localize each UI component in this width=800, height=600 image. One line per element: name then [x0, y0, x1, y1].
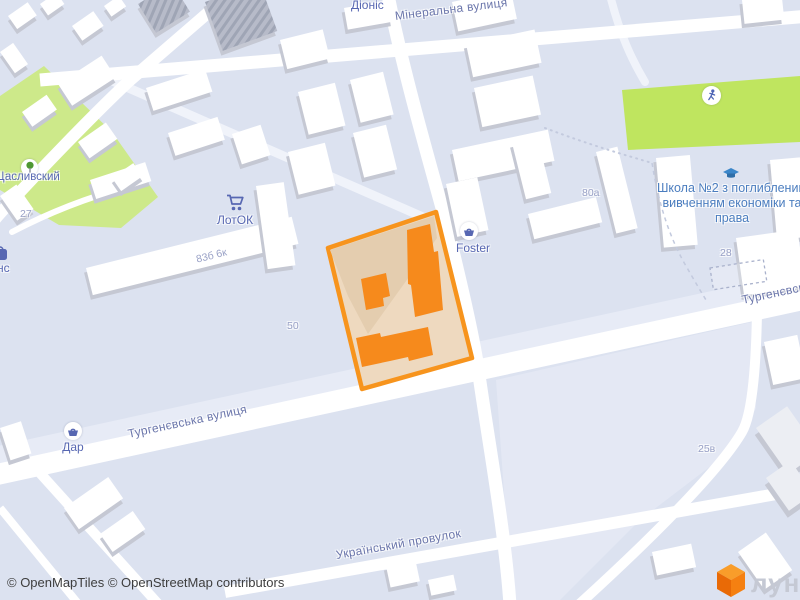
poi-label-dar: Дар: [60, 440, 86, 454]
map-attribution[interactable]: © OpenMapTiles © OpenStreetMap contribut…: [7, 575, 284, 590]
store-bag-icon[interactable]: [0, 246, 9, 261]
lun-logo-text: лун: [751, 568, 800, 599]
running-person-icon: [706, 89, 718, 102]
housenum-80a: 80а: [582, 187, 600, 199]
poi-label-foster: Foster: [456, 241, 490, 255]
poi-label-dionis: Діоніс: [351, 0, 384, 12]
lun-cube-icon: [716, 564, 746, 598]
housenum-27: 27: [20, 208, 32, 220]
foster-badge[interactable]: [460, 222, 478, 240]
housenum-50: 50: [287, 320, 299, 332]
poi-label-partial: нс: [0, 261, 10, 275]
map[interactable]: Мінеральна вулиця Тургенєвська вулиця Ту…: [0, 0, 800, 600]
graduation-cap-icon[interactable]: [722, 167, 740, 181]
dar-badge[interactable]: [64, 422, 82, 440]
field-badge[interactable]: [702, 86, 721, 105]
shopping-basket-icon: [463, 226, 475, 237]
poi-label-lotok: ЛотОК: [217, 213, 253, 227]
poi-label-school: Школа №2 з поглибленим вивченням економі…: [656, 181, 800, 225]
shopping-cart-icon[interactable]: [225, 193, 247, 212]
shopping-basket-icon: [67, 426, 79, 437]
housenum-28: 28: [720, 247, 732, 259]
map-canvas[interactable]: [0, 0, 800, 600]
poi-label-shchaslyvskyi: Щасливский: [0, 171, 60, 183]
housenum-25v: 25в: [698, 443, 715, 455]
